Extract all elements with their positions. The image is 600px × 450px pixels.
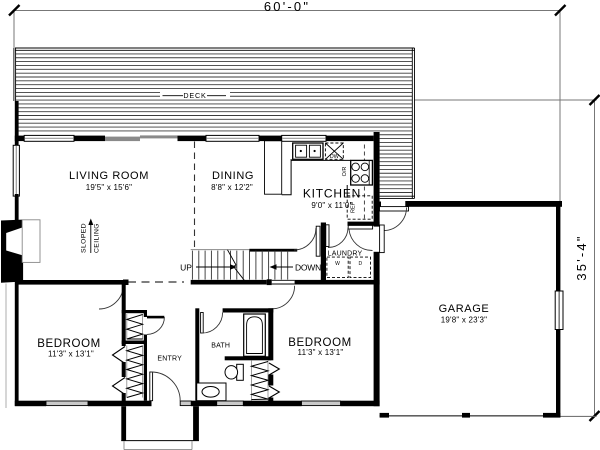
svg-text:LAUNDRY: LAUNDRY bbox=[328, 251, 363, 258]
svg-text:REF: REF bbox=[351, 201, 357, 213]
svg-text:11'3" x 13'1": 11'3" x 13'1" bbox=[48, 350, 94, 359]
svg-text:GARAGE: GARAGE bbox=[439, 303, 490, 315]
svg-text:O/R: O/R bbox=[342, 167, 348, 177]
svg-text:UP: UP bbox=[180, 263, 192, 273]
svg-text:DINING: DINING bbox=[212, 170, 254, 182]
svg-text:60'-0": 60'-0" bbox=[264, 0, 310, 14]
svg-text:19'5" x 15'6": 19'5" x 15'6" bbox=[86, 183, 132, 192]
svg-text:CEILING: CEILING bbox=[94, 223, 101, 253]
svg-text:DECK: DECK bbox=[183, 91, 206, 100]
svg-text:35'-4": 35'-4" bbox=[574, 234, 589, 280]
svg-text:8'8" x 12'2": 8'8" x 12'2" bbox=[211, 183, 253, 192]
svg-text:DOWN: DOWN bbox=[295, 263, 321, 273]
svg-text:D: D bbox=[358, 261, 362, 267]
svg-text:LIVING ROOM: LIVING ROOM bbox=[69, 170, 149, 182]
svg-text:SLOPED: SLOPED bbox=[81, 223, 88, 253]
svg-text:W: W bbox=[335, 261, 340, 267]
svg-text:19'8" x 23'3": 19'8" x 23'3" bbox=[441, 316, 487, 325]
svg-text:BEDROOM: BEDROOM bbox=[37, 338, 101, 350]
svg-text:11'3" x 13'1": 11'3" x 13'1" bbox=[298, 348, 344, 357]
svg-text:BATH: BATH bbox=[211, 342, 230, 349]
svg-text:KITCHEN: KITCHEN bbox=[303, 187, 361, 201]
svg-text:ENTRY: ENTRY bbox=[157, 356, 182, 363]
svg-text:DW: DW bbox=[330, 154, 340, 160]
svg-text:9'0" x 11'0": 9'0" x 11'0" bbox=[311, 201, 352, 210]
